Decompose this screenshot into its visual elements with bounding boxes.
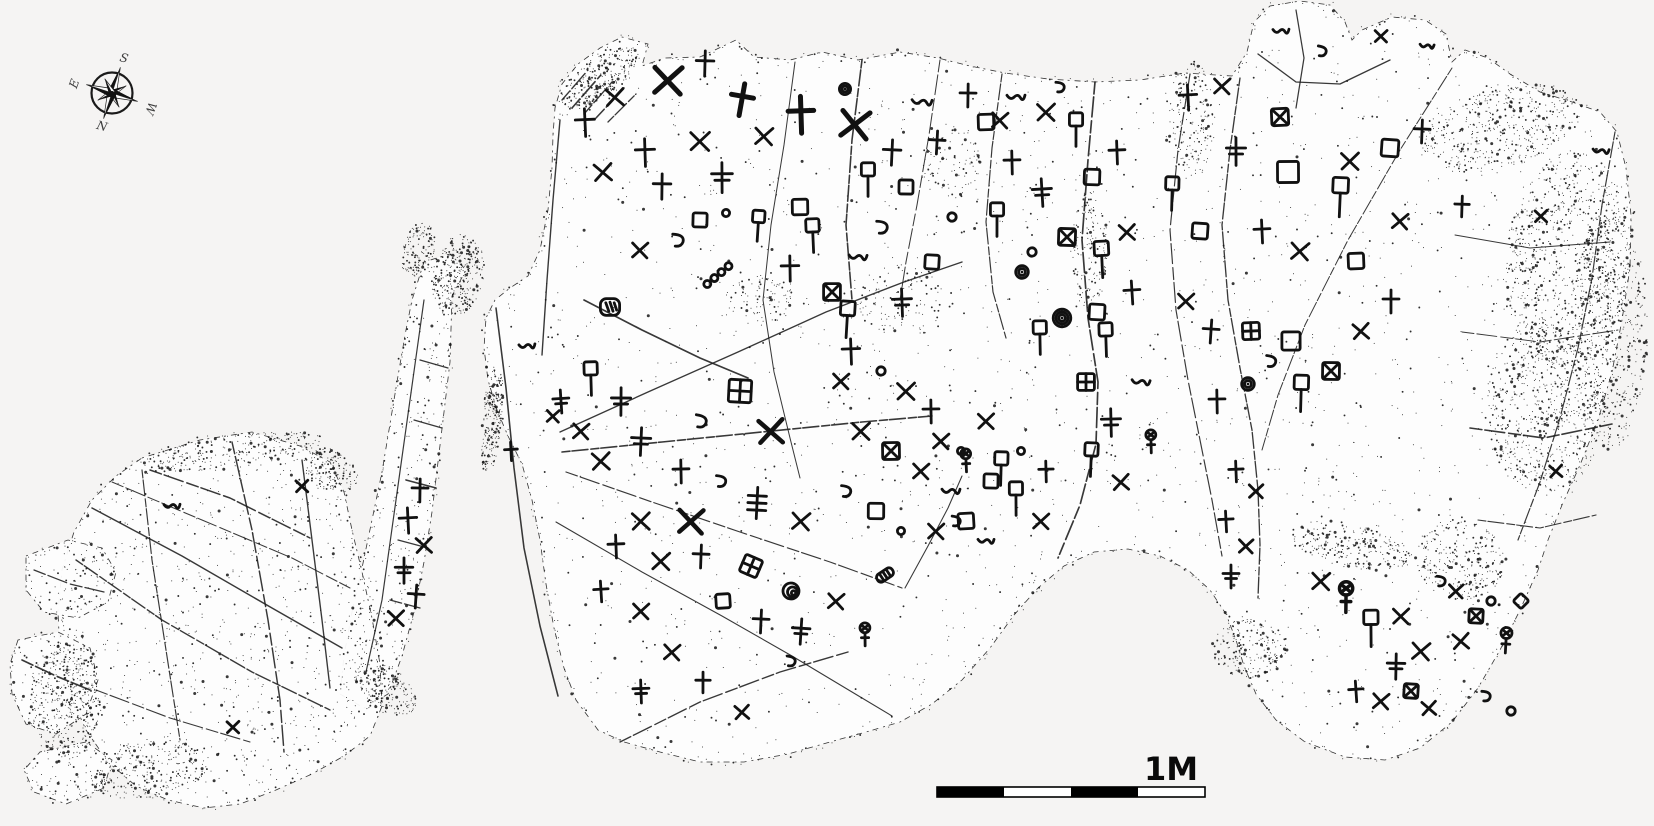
compass-label-east: E xyxy=(66,77,83,91)
rock-fragments-layer xyxy=(10,1,1631,808)
scale-bar-segments xyxy=(937,787,1205,797)
motif-rings2 xyxy=(1242,378,1255,391)
compass-label-north: N xyxy=(94,118,109,135)
motif-rings2 xyxy=(839,83,851,95)
compass-star-icon xyxy=(86,67,137,118)
rock-fragment-bottom-left-slab xyxy=(58,432,382,808)
compass-label-south: S xyxy=(118,50,130,66)
petroglyph-panel-svg: S E W N 1M xyxy=(0,0,1654,826)
motif-rings3 xyxy=(1053,309,1071,327)
motif-ring xyxy=(1507,707,1516,716)
archaeological-tracing-figure: S E W N 1M xyxy=(0,0,1654,826)
scale-bar-segment xyxy=(1138,787,1205,797)
motif-rings2 xyxy=(1016,266,1029,279)
scale-bar-label: 1M xyxy=(1144,750,1198,788)
scale-bar-segment xyxy=(937,787,1004,797)
scale-bar: 1M xyxy=(937,750,1205,797)
compass-rose: S E W N xyxy=(66,50,160,134)
scale-bar-segment xyxy=(1004,787,1071,797)
motif-hook xyxy=(1482,691,1491,701)
compass-label-west: W xyxy=(142,100,160,118)
scale-bar-segment xyxy=(1071,787,1138,797)
